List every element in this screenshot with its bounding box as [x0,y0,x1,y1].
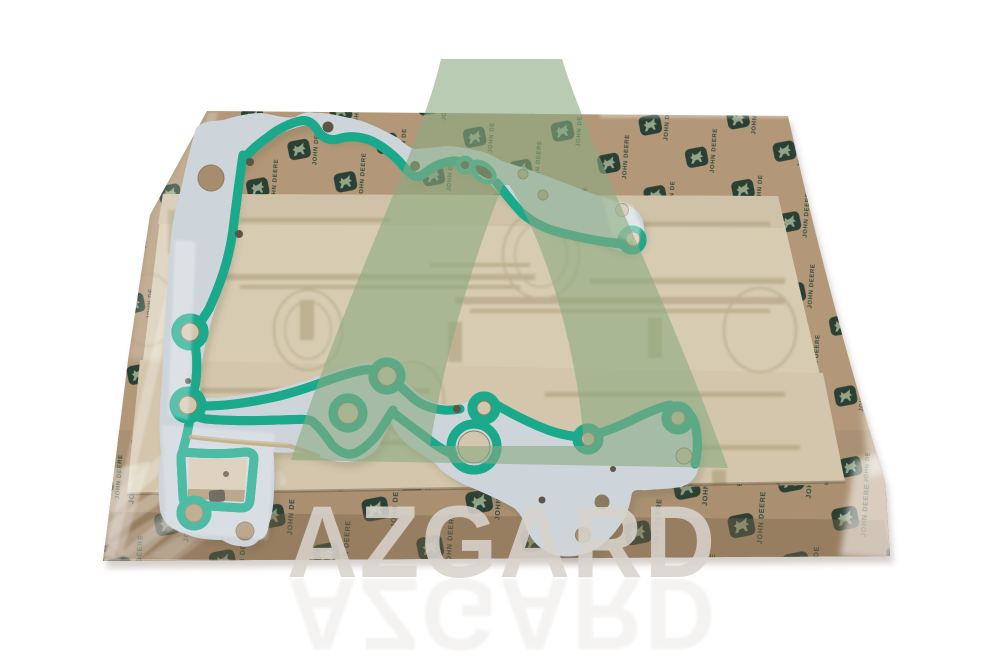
svg-text:AZGARD: AZGARD [287,485,717,599]
